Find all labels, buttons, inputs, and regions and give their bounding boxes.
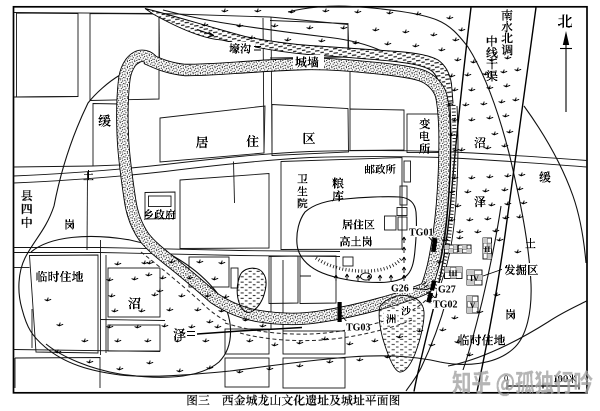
- svg-text:TG02: TG02: [433, 300, 457, 311]
- svg-text:G26: G26: [391, 284, 409, 295]
- svg-text:TG01: TG01: [409, 228, 433, 239]
- svg-text:V: V: [470, 301, 476, 310]
- svg-text:IV: IV: [470, 274, 479, 283]
- svg-text:G27: G27: [438, 285, 456, 296]
- svg-text:III: III: [448, 269, 457, 278]
- svg-text:II: II: [484, 245, 490, 254]
- svg-text:I: I: [456, 244, 460, 254]
- svg-text:TG03: TG03: [346, 323, 370, 334]
